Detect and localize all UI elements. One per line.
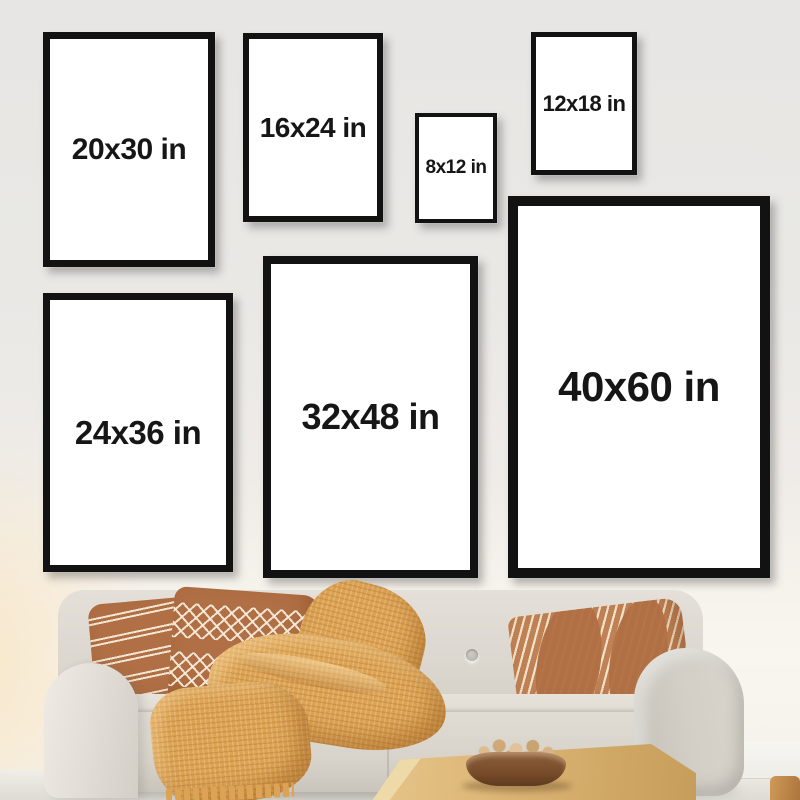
throw-blanket-drape [147, 677, 315, 800]
wall-skirting [738, 742, 800, 779]
frame-32x48: 32x48 in [263, 256, 478, 578]
nut-bowl [466, 736, 566, 790]
sofa-left-arm [44, 663, 138, 798]
frame-40x60: 40x60 in [508, 196, 770, 578]
frame-size-label-16x24: 16x24 in [260, 112, 367, 144]
frame-size-label-8x12: 8x12 in [426, 157, 487, 179]
frame-size-label-20x30: 20x30 in [72, 133, 186, 167]
frame-size-label-12x18: 12x18 in [543, 91, 626, 117]
sofa-tuft-button [466, 649, 478, 661]
side-stool [770, 776, 800, 800]
wooden-bowl [466, 752, 566, 786]
frame-size-label-32x48: 32x48 in [301, 396, 439, 438]
frame-24x36: 24x36 in [43, 293, 233, 572]
frame-16x24: 16x24 in [243, 33, 383, 222]
frame-12x18: 12x18 in [531, 32, 637, 175]
poster-size-mockup-scene: 20x30 in 16x24 in 8x12 in 12x18 in 24x36… [0, 0, 800, 800]
frame-20x30: 20x30 in [43, 32, 215, 267]
frame-size-label-24x36: 24x36 in [75, 414, 201, 452]
frame-size-label-40x60: 40x60 in [558, 363, 720, 411]
frame-8x12: 8x12 in [415, 113, 497, 223]
